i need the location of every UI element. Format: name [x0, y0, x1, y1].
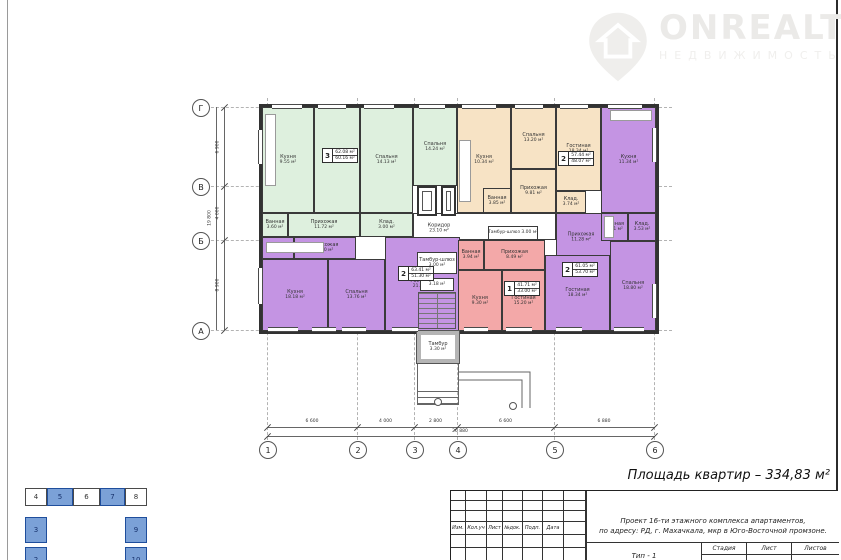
axis-circle-А: А	[192, 322, 210, 340]
axis-circle-1: 1	[259, 441, 277, 459]
axis-circle-6: 6	[646, 441, 664, 459]
axis-circle-Б: Б	[192, 232, 210, 250]
room-o_hall: Прихожая9.81 м²	[511, 169, 556, 213]
sheet-title: Тип - 1	[586, 543, 701, 560]
keyplan-unit-7: 7	[100, 488, 125, 506]
stage-value-cell	[701, 555, 746, 560]
room-label: Спальня18.80 м²	[622, 280, 644, 291]
room-o_living: Гостиная18.34 м²	[556, 107, 601, 191]
total-area-note: Площадь квартир – 334,83 м²	[0, 468, 830, 483]
titleblock-col-Дата: Дата	[543, 522, 564, 535]
drawing-sheet: ONREALT НЕДВИЖИМОСТЬ 123456ГВБАКухня9.55…	[0, 0, 841, 560]
titleblock-col-Лист: Лист	[487, 522, 503, 535]
titleblock-cell	[543, 548, 564, 560]
apartment-stamp-purple_left: 263.41 м²51.30 м²	[398, 266, 434, 281]
room-pk_bath: Ванная3.94 м²	[458, 240, 484, 270]
dimension-value: 6 880	[598, 419, 611, 424]
room-area: 9.55 м²	[280, 160, 297, 165]
titleblock-cell	[523, 535, 543, 548]
project-description: Проект 16-ти этажного комплекса апартаме…	[586, 491, 839, 543]
sheets-header: Листов	[791, 543, 839, 555]
titleblock-col-Подп.: Подп.	[523, 522, 543, 535]
room-label: Спальня13.76 м²	[345, 289, 367, 300]
room-label: Тамбур3.30 м²	[428, 341, 447, 352]
titleblock-cell	[523, 548, 543, 560]
sheets-value-cell	[791, 555, 839, 560]
room-name: Кухня	[472, 295, 488, 301]
axis-circle-2: 2	[349, 441, 367, 459]
room-g_stor: Клад.3.00 м²	[360, 213, 413, 237]
apartment-stamp-purple_right: 261.05 м²53.70 м²	[562, 262, 598, 277]
room-area: 13.76 м²	[345, 295, 367, 300]
room-label: Прихожая11.72 м²	[311, 219, 338, 230]
axis-circle-В: В	[192, 178, 210, 196]
titleblock-cell	[466, 535, 487, 548]
room-label: Спальня14.24 м²	[424, 141, 446, 152]
window	[258, 268, 263, 304]
window	[318, 104, 346, 109]
room-name: Спальня	[424, 141, 446, 147]
dimension-value: 2 800	[429, 419, 442, 424]
window	[506, 327, 532, 332]
titleblock-cell	[466, 511, 487, 522]
room-area: 3.85 м²	[487, 201, 506, 206]
apartment-rooms-count: 2	[563, 263, 573, 276]
titleblock-cell	[503, 511, 523, 522]
titleblock-cell	[451, 491, 466, 501]
room-label: Прихожая8.49 м²	[501, 249, 528, 260]
room-o_bed: Спальня13.20 м²	[511, 107, 556, 169]
keyplan-unit-3: 3	[25, 517, 47, 543]
axis-circle-5: 5	[546, 441, 564, 459]
room-p2_bed: Спальня13.76 м²	[328, 259, 385, 331]
window	[312, 327, 336, 332]
titleblock-cell	[543, 501, 564, 511]
window	[268, 327, 298, 332]
room-label: Ванная3.60 м²	[265, 219, 284, 230]
room-g_hall: Прихожая11.72 м²	[288, 213, 360, 237]
titleblock-cell	[451, 511, 466, 522]
keyplan-unit-9: 9	[125, 517, 147, 543]
titleblock-cell	[466, 491, 487, 501]
room-o_stor: Клад.3.74 м²	[556, 191, 586, 213]
apartment-living-area: 60.16 м²	[333, 156, 357, 161]
apartment-rooms-count: 2	[399, 267, 409, 280]
axis-circle-4: 4	[449, 441, 467, 459]
titleblock-cell	[564, 535, 586, 548]
room-g_bath: Ванная3.60 м²	[262, 213, 288, 237]
room-area: 11.28 м²	[568, 237, 595, 242]
titleblock-cell	[564, 491, 586, 501]
entry-tambour: Тамбур3.30 м²	[417, 331, 459, 363]
room-label: Кухня18.18 м²	[285, 289, 305, 300]
elevator-shaft	[417, 186, 437, 216]
keyplan-unit-4: 4	[25, 488, 47, 506]
apartment-rooms-count: 2	[559, 152, 569, 165]
dimension-value: 8 900	[216, 279, 221, 292]
sheet-header: Лист	[746, 543, 791, 555]
room-area: 18.18 м²	[285, 295, 305, 300]
titleblock-cell	[543, 535, 564, 548]
kitchen-fixture	[459, 140, 471, 202]
dimension-line-left	[224, 107, 225, 330]
titleblock-cell	[523, 501, 543, 511]
project-line-2: по адресу: РД, г. Махачкала, мкр в Юго-В…	[599, 526, 827, 536]
keyplan-unit-10: 10	[125, 547, 147, 560]
room-area: 3.94 м²	[461, 255, 480, 260]
keyplan-unit-6: 6	[73, 488, 100, 506]
room-pk_hall: Прихожая8.49 м²	[484, 240, 545, 270]
room-p1_kitchen: Кухня11.34 м²	[601, 107, 656, 213]
dimension-value: 6 600	[306, 419, 319, 424]
window	[258, 130, 263, 164]
room-area: 11.34 м²	[619, 160, 639, 165]
axis-circle-3: 3	[406, 441, 424, 459]
room-area: 11.72 м²	[311, 225, 338, 230]
key-plan: 4567832910	[0, 485, 160, 560]
window	[515, 104, 543, 109]
axis-circle-Г: Г	[192, 99, 210, 117]
title-block: Проект 16-ти этажного комплекса апартаме…	[450, 490, 838, 560]
titleblock-cell	[466, 548, 487, 560]
titleblock-cell	[487, 491, 503, 501]
window	[614, 327, 644, 332]
room-label: Кухня9.30 м²	[472, 295, 489, 306]
window	[652, 128, 657, 162]
apartment-living-area: 51.30 м²	[409, 274, 433, 279]
dimension-value: 4 000	[379, 419, 392, 424]
titleblock-cell	[543, 491, 564, 501]
room-area: 13.20 м²	[522, 138, 544, 143]
room-area: 18.34 м²	[565, 293, 589, 298]
room-area: 18.80 м²	[622, 286, 644, 291]
titleblock-cell	[564, 522, 586, 535]
window	[419, 104, 445, 109]
apartment-living-area: 48.07 м²	[569, 159, 593, 164]
window	[364, 104, 394, 109]
staircase	[418, 292, 456, 329]
apartment-stamp-green: 362.08 м²60.16 м²	[322, 148, 358, 163]
room-p1_bed: Спальня18.80 м²	[610, 241, 656, 331]
titleblock-cell	[564, 501, 586, 511]
titleblock-cell	[466, 501, 487, 511]
window	[652, 284, 657, 318]
room-label: Гостиная18.34 м²	[565, 287, 589, 298]
keyplan-unit-8: 8	[125, 488, 147, 506]
titleblock-cell	[564, 548, 586, 560]
room-g_bed2: Спальня14.24 м²	[413, 107, 457, 186]
dimension-value: 6 900	[216, 140, 221, 153]
dimension-line-bottom-total	[267, 436, 655, 437]
room-name: Ванная	[487, 195, 506, 201]
window	[556, 327, 582, 332]
titleblock-cell	[503, 548, 523, 560]
room-label: Клад.3.53 м²	[634, 221, 651, 232]
room-label: Коридор23.10 м²	[428, 222, 451, 233]
window	[342, 327, 366, 332]
room-label: Тамбур-шлюз 3.00 м²	[488, 230, 538, 235]
sheet-value-cell	[746, 555, 791, 560]
kitchen-fixture	[610, 110, 652, 121]
room-area: 3.74 м²	[563, 202, 580, 207]
room-label: Кухня10.34 м²	[474, 154, 494, 165]
entry-ramp	[458, 366, 548, 412]
room-area: 14.13 м²	[375, 160, 397, 165]
keyplan-unit-5: 5	[47, 488, 73, 506]
titleblock-col-Изм.: Изм.	[451, 522, 466, 535]
room-label: Спальня13.20 м²	[522, 132, 544, 143]
dimension-line-bottom	[267, 427, 655, 428]
window	[392, 327, 418, 332]
apartment-stamp-pink: 141.71 м²33.00 м²	[504, 281, 540, 296]
titleblock-cell	[503, 501, 523, 511]
apartment-rooms-count: 3	[323, 149, 333, 162]
room-label: Прихожая11.28 м²	[568, 231, 595, 242]
titleblock-cell	[523, 511, 543, 522]
keyplan-unit-2: 2	[25, 547, 47, 560]
room-area: 8.49 м²	[501, 255, 528, 260]
room-area: 15.20 м²	[511, 301, 535, 306]
dimension-total-value: 19 800	[208, 210, 213, 226]
room-p2_kitchen: Кухня18.18 м²	[262, 259, 328, 331]
titleblock-cell	[543, 511, 564, 522]
room-area: 3.00 м²	[378, 225, 395, 230]
room-area: 3.60 м²	[265, 225, 284, 230]
project-line-1: Проект 16-ти этажного комплекса апартаме…	[620, 516, 805, 526]
window	[464, 327, 488, 332]
titleblock-col-№док.: №док.	[503, 522, 523, 535]
titleblock-cell	[503, 535, 523, 548]
dimension-value: 6 600	[499, 419, 512, 424]
room-area: 23.10 м²	[428, 228, 451, 233]
room-p1_stor: Клад.3.53 м²	[628, 213, 656, 241]
level-marker	[509, 402, 517, 410]
room-label: Прихожая9.81 м²	[520, 185, 547, 196]
window	[272, 104, 302, 109]
room-label: Клад.3.00 м²	[378, 219, 395, 230]
stage-header: Стадия	[701, 543, 746, 555]
titleblock-cell	[451, 501, 466, 511]
titleblock-cell	[451, 548, 466, 560]
apartment-rooms-count: 1	[505, 282, 515, 295]
room-o_bath: Ванная3.85 м²	[483, 188, 511, 213]
dimension-value: 4 000	[216, 207, 221, 220]
apartment-stamp-orange: 257.44 м²48.07 м²	[558, 151, 594, 166]
room-label: Кухня9.55 м²	[280, 154, 297, 165]
room-pk_kitchen: Кухня9.30 м²	[458, 270, 502, 331]
dimension-total-value: 26 880	[452, 429, 468, 434]
titleblock-cell	[451, 535, 466, 548]
room-area: 9.81 м²	[520, 191, 547, 196]
window	[462, 104, 496, 109]
room-label: Спальня14.13 м²	[375, 154, 397, 165]
apartment-living-area: 53.70 м²	[573, 270, 597, 275]
titleblock-cell	[523, 491, 543, 501]
window	[608, 104, 642, 109]
apartment-living-area: 33.00 м²	[515, 289, 539, 294]
room-area: 3.53 м²	[634, 227, 651, 232]
window	[560, 104, 588, 109]
kitchen-fixture	[265, 114, 276, 186]
titleblock-cell	[487, 511, 503, 522]
room-area: 9.30 м²	[472, 301, 489, 306]
titleblock-col-Кол.уч: Кол.уч	[466, 522, 487, 535]
room-label: 3.18 м²	[429, 282, 446, 287]
room-label: Ванная3.94 м²	[461, 249, 480, 260]
room-area: 10.34 м²	[474, 160, 494, 165]
room-pk_living: Гостиная15.20 м²	[502, 270, 545, 331]
room-label: Кухня11.34 м²	[619, 154, 639, 165]
kitchen-fixture	[266, 242, 324, 253]
titleblock-cell	[487, 548, 503, 560]
room-g_bed1: Спальня14.13 м²	[360, 107, 413, 213]
room-label: Гостиная15.20 м²	[511, 295, 535, 306]
room-area: 14.24 м²	[424, 147, 446, 152]
titleblock-cell	[487, 501, 503, 511]
kitchen-fixture	[604, 216, 614, 238]
titleblock-cell	[487, 535, 503, 548]
titleblock-cell	[503, 491, 523, 501]
elevator-shaft	[441, 186, 456, 216]
titleblock-cell	[564, 511, 586, 522]
room-core_tambur2: Тамбур-шлюз 3.00 м²	[488, 226, 538, 240]
room-label: Клад.3.74 м²	[563, 196, 580, 207]
level-marker	[434, 398, 442, 406]
room-label: Ванная3.85 м²	[487, 195, 506, 206]
